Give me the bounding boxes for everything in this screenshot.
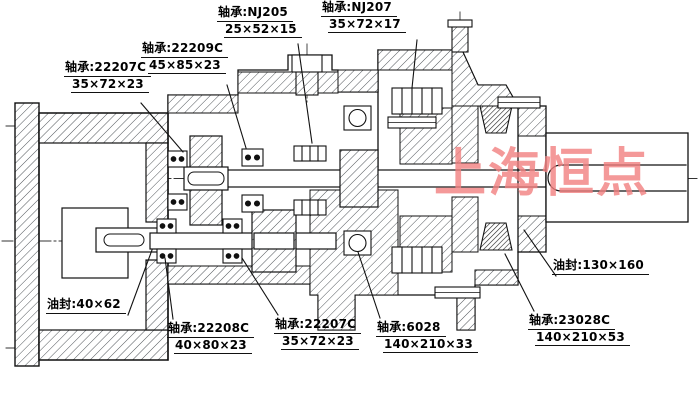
- callout-part-label: 轴承:6028: [376, 320, 446, 337]
- callout-size-label: 35×72×23: [281, 334, 359, 351]
- gear-2: [340, 150, 378, 207]
- callout-part-label: 轴承:NJ207: [321, 0, 397, 17]
- planet-carrier-upper: [400, 108, 452, 164]
- callout-oil-seal-right: 油封:130×160: [552, 258, 649, 275]
- top-bolt-shank: [296, 71, 318, 95]
- output-shaft: [546, 133, 688, 222]
- callout-bearing-22208c: 轴承:22208C 40×80×23: [167, 321, 254, 354]
- left-flange: [15, 103, 39, 366]
- callout-size-label: 45×85×23: [148, 58, 226, 75]
- callout-bearing-22209c: 轴承:22209C 45×85×23: [141, 41, 228, 74]
- callout-bearing-nj207: 轴承:NJ207 35×72×17: [321, 0, 406, 33]
- callout-size-label: 40×80×23: [174, 338, 252, 355]
- top-stud: [452, 26, 468, 52]
- callout-part-label: 油封:130×160: [552, 258, 649, 275]
- callout-part-label: 油封:40×62: [46, 297, 126, 314]
- callout-size-label: 25×52×15: [224, 22, 302, 39]
- callout-bearing-23028c: 轴承:23028C 140×210×53: [528, 313, 630, 346]
- callout-size-label: 35×72×17: [328, 17, 406, 34]
- callout-part-label: 轴承:22207C: [64, 60, 151, 77]
- callout-part-label: 轴承:NJ205: [217, 5, 293, 22]
- callout-bearing-22207c-bottom: 轴承:22207C 35×72×23: [274, 317, 361, 350]
- callout-bearing-22207c-top: 轴承:22207C 35×72×23: [64, 60, 151, 93]
- callout-size-label: 35×72×23: [71, 77, 149, 94]
- callout-size-label: 140×210×53: [535, 330, 630, 347]
- callout-part-label: 轴承:22207C: [274, 317, 361, 334]
- gearbox-sectional-drawing: 上海恒点 轴承:22207C 35×72×23 轴承:22209C 45×85×…: [0, 0, 700, 400]
- callout-bearing-6028: 轴承:6028 140×210×33: [376, 320, 478, 353]
- callout-part-label: 轴承:22208C: [167, 321, 254, 338]
- callout-oil-seal-left: 油封:40×62: [46, 297, 126, 314]
- lower-shaft: [150, 233, 336, 249]
- callout-part-label: 轴承:22209C: [141, 41, 228, 58]
- callout-bearing-nj205: 轴承:NJ205 25×52×15: [217, 5, 302, 38]
- top-bolt-head: [292, 55, 322, 72]
- callout-size-label: 140×210×33: [383, 337, 478, 354]
- callout-part-label: 轴承:23028C: [528, 313, 615, 330]
